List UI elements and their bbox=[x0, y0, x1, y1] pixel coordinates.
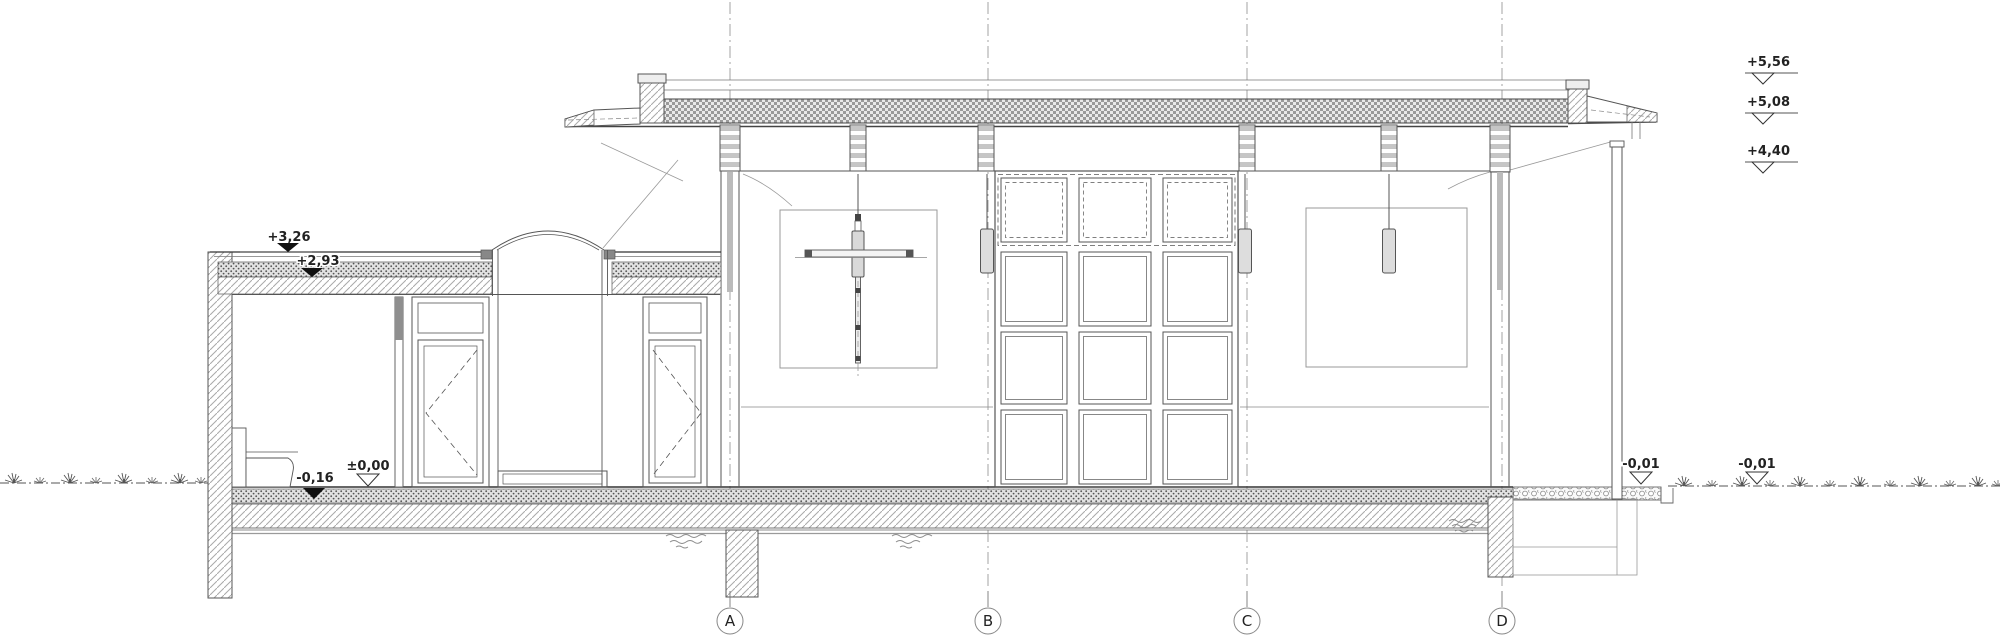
crucifix bbox=[795, 174, 927, 378]
pier-axis-d bbox=[1490, 125, 1510, 172]
level-326-label: +3,26 bbox=[268, 230, 311, 245]
datum-508: +5,08 bbox=[1745, 95, 1798, 124]
porch-post-cap bbox=[1610, 141, 1624, 147]
grid-axis-b-label: B bbox=[983, 612, 993, 630]
wall-axis-d bbox=[1491, 172, 1509, 487]
pendant-light-b bbox=[981, 174, 994, 273]
level-marker-000: ±0,00 bbox=[347, 459, 390, 486]
cove-curve-left bbox=[743, 174, 792, 206]
grid-axis-c: C bbox=[1234, 591, 1260, 634]
floor-assembly bbox=[208, 487, 1513, 534]
datum-556-label: +5,56 bbox=[1747, 55, 1790, 70]
grid-axis-d: D bbox=[1489, 591, 1515, 634]
datum-440-label: +4,40 bbox=[1747, 144, 1790, 159]
grid-axis-a-label: A bbox=[725, 612, 736, 630]
gravel-strip bbox=[1513, 487, 1673, 503]
below-grade-structure bbox=[1513, 499, 1637, 575]
terrain-left bbox=[0, 473, 209, 483]
level-marker-minus001-b: -0,01 bbox=[1738, 457, 1775, 484]
pendant-light-right bbox=[1383, 174, 1396, 273]
datum-556: +5,56 bbox=[1745, 55, 1798, 84]
datum-440: +4,40 bbox=[1745, 144, 1798, 173]
annex-roof-right bbox=[612, 252, 721, 294]
window-grid bbox=[995, 171, 1238, 487]
grid-axis-d-label: D bbox=[1496, 612, 1508, 630]
pier-mid-right bbox=[1381, 125, 1397, 171]
annex-cabinet bbox=[498, 471, 607, 487]
right-roof-upstand bbox=[1568, 88, 1587, 123]
level-minus016-label: -0,16 bbox=[296, 471, 333, 486]
porch-post bbox=[1612, 147, 1622, 499]
level-minus001b-label: -0,01 bbox=[1738, 457, 1775, 472]
level-minus001a-label: -0,01 bbox=[1622, 457, 1659, 472]
wc-fixture bbox=[232, 428, 298, 487]
crucifix-hanger bbox=[855, 214, 861, 221]
building-section-svg: A B C D +3,26 +2,93 ±0,00 -0,16 bbox=[0, 0, 2000, 640]
grid-axis-c-label: C bbox=[1242, 612, 1252, 630]
right-margin-levels: +5,56 +5,08 +4,40 bbox=[1745, 55, 1798, 173]
level-marker-minus001-a: -0,01 bbox=[1622, 457, 1659, 484]
right-eave bbox=[1510, 80, 1657, 499]
annex-door-right bbox=[643, 297, 707, 487]
dome-rooflight bbox=[481, 231, 615, 487]
cove-curve-right bbox=[1448, 172, 1490, 189]
pier-axis-a bbox=[720, 125, 740, 171]
annex-door-left bbox=[412, 297, 489, 487]
annex-partition bbox=[395, 297, 403, 487]
left-wall-and-footing bbox=[208, 252, 232, 598]
footing-axis-a bbox=[726, 530, 758, 597]
pier-axis-c bbox=[1239, 125, 1255, 171]
crucifix-arm bbox=[805, 250, 913, 257]
grid-axis-b: B bbox=[975, 591, 1001, 634]
pier-axis-b bbox=[978, 125, 994, 171]
terrain-right bbox=[1668, 476, 2000, 486]
datum-508-label: +5,08 bbox=[1747, 95, 1790, 110]
pendant-lights bbox=[981, 174, 1396, 273]
left-roof-upstand bbox=[640, 82, 664, 123]
level-marker-326: +3,26 bbox=[240, 230, 312, 252]
level-000-label: ±0,00 bbox=[347, 459, 390, 474]
clerestory bbox=[720, 125, 1510, 172]
annex bbox=[210, 231, 721, 487]
level-293-label: +2,93 bbox=[297, 254, 340, 269]
section-drawing-canvas: A B C D +3,26 +2,93 ±0,00 -0,16 bbox=[0, 0, 2000, 640]
pier-mid-left bbox=[850, 125, 866, 171]
roof-insulation-band bbox=[664, 99, 1568, 123]
grid-axis-bubbles: A B C D bbox=[717, 591, 1515, 634]
pendant-light-c bbox=[1239, 174, 1252, 273]
annex-roof-left bbox=[210, 252, 492, 294]
footing-axis-d bbox=[1488, 497, 1513, 577]
wall-axis-a bbox=[721, 171, 739, 487]
